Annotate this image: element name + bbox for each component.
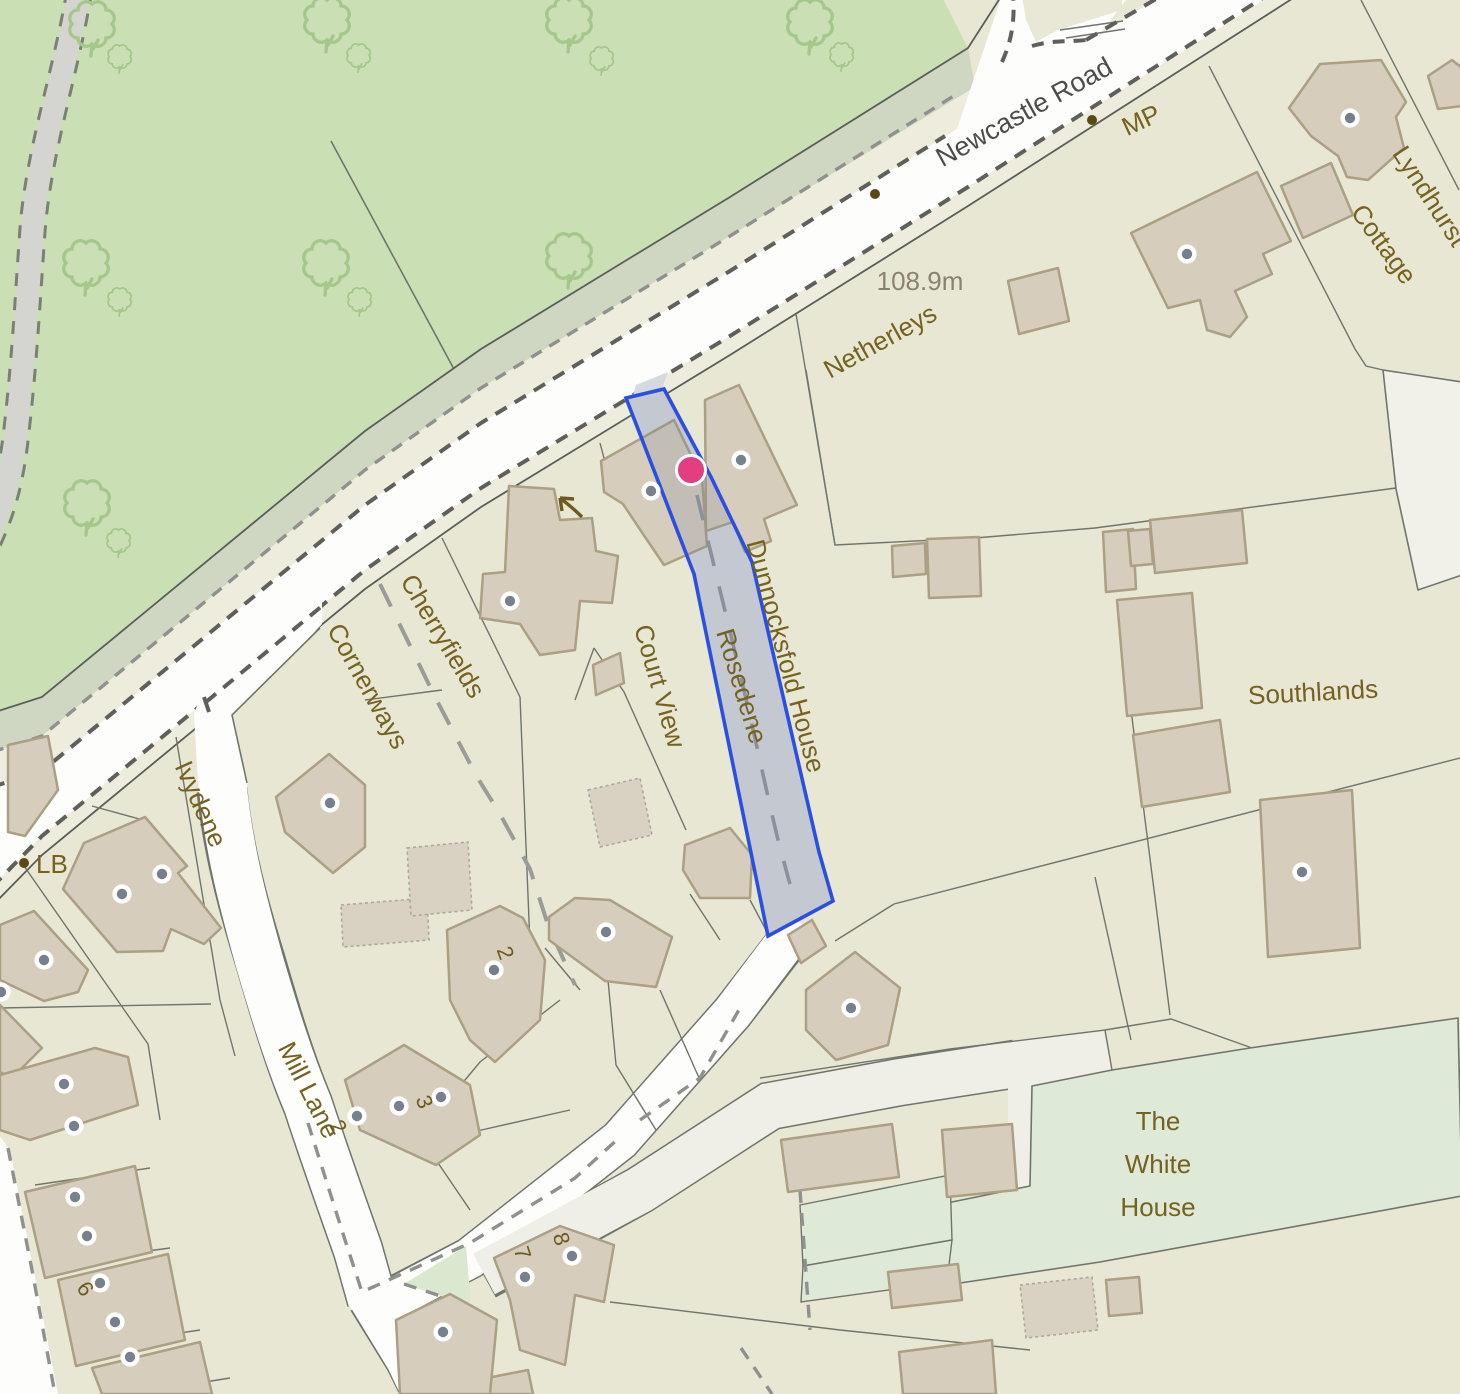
svg-text:House: House — [1120, 1192, 1195, 1222]
svg-text:White: White — [1125, 1149, 1191, 1179]
svg-text:LB: LB — [36, 849, 68, 879]
svg-text:108.9m: 108.9m — [877, 266, 964, 296]
svg-text:The: The — [1136, 1106, 1181, 1136]
